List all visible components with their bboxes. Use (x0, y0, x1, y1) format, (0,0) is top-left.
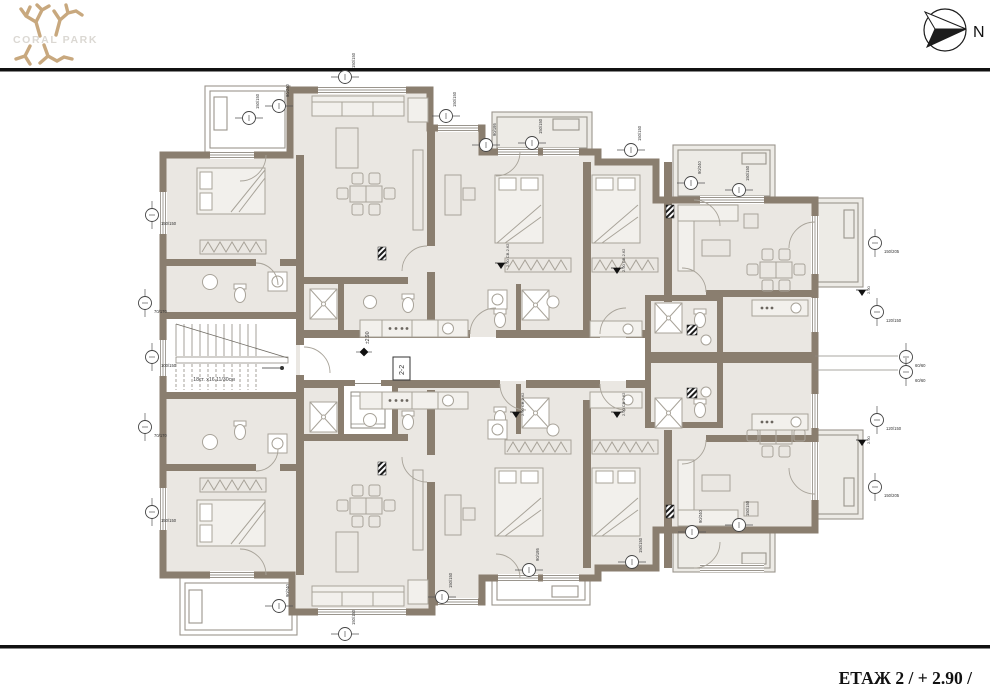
section-label: 2-2 (399, 365, 406, 375)
dim-label: 60/60 (915, 363, 926, 368)
dim-marker: 150/150 (331, 52, 359, 83)
dim-label: 150/150 (351, 52, 356, 68)
dim-label: 150/150 (637, 125, 642, 141)
dim-label: 120/150 (886, 318, 902, 323)
dim-marker: 150/150 (617, 125, 645, 156)
dim-label: 150/150 (448, 572, 453, 588)
compass-label: N (973, 24, 985, 41)
dim-label: 150/150 (255, 93, 260, 109)
corridor-level-label: ±2.90 (365, 331, 371, 344)
dim-label: 60/60 (915, 378, 926, 383)
coral-park-logo: CORAL PARK (13, 5, 98, 64)
dim-label: 150/150 (161, 221, 177, 226)
dim-marker: 120/150 (871, 406, 902, 434)
balcony-top-right (673, 145, 775, 200)
bottom-rule (0, 645, 990, 649)
dim-label: 150/150 (351, 609, 356, 625)
drawing-sheet: CORAL PARK N (0, 0, 990, 700)
dim-label: 100/150 (161, 363, 177, 368)
level-label: 2.90 (866, 435, 871, 444)
sheet-title: ЕТАЖ 2 / + 2.90 / (839, 668, 973, 688)
logo-text: CORAL PARK (13, 34, 98, 46)
stair-note: 18ст. х16.11/30см (193, 377, 235, 383)
level-label: 2.90 (866, 285, 871, 294)
dim-label: 120/150 (886, 426, 902, 431)
dim-label: 90/240 (698, 510, 703, 523)
dim-label: 70/170 (154, 309, 167, 314)
top-rule (0, 68, 990, 72)
dim-marker: 150/205 (869, 473, 900, 501)
corridor-end-lines (815, 356, 898, 370)
dim-label: 150/150 (745, 500, 750, 516)
level-label: 2.90 СВ.2.62 (505, 243, 510, 267)
dim-label: 90/195 (492, 123, 497, 136)
dim-label: 150/150 (538, 118, 543, 134)
dim-marker: 150/150 (432, 91, 460, 122)
dim-label: 90/240 (285, 584, 290, 597)
dim-label: 150/150 (452, 91, 457, 107)
dim-label: 150/205 (884, 493, 900, 498)
north-compass-icon: N (924, 9, 985, 51)
dim-marker: 120/150 (871, 298, 902, 326)
floor-plan-canvas: CORAL PARK N (0, 0, 990, 700)
dim-label: 90/195 (535, 548, 540, 561)
dim-label: 90/240 (285, 84, 290, 97)
dim-label: 150/150 (161, 518, 177, 523)
dim-label: 150/205 (884, 249, 900, 254)
balcony-east-upper (813, 198, 863, 287)
corridor (300, 337, 645, 381)
dim-marker: 150/205 (869, 229, 900, 257)
level-label: 2.90 СВ.2.62 (520, 392, 525, 416)
section-marker: 2-2 (393, 357, 410, 380)
level-label: 2.90 СВ.2.62 (621, 248, 626, 272)
dim-label: 90/240 (697, 161, 702, 174)
dim-label: 150/150 (745, 165, 750, 181)
level-label: 2.90 СВ.2.62 (621, 392, 626, 416)
dim-label: 150/150 (638, 537, 643, 553)
balcony-east-lower (813, 430, 863, 519)
dim-label: 70/170 (154, 433, 167, 438)
